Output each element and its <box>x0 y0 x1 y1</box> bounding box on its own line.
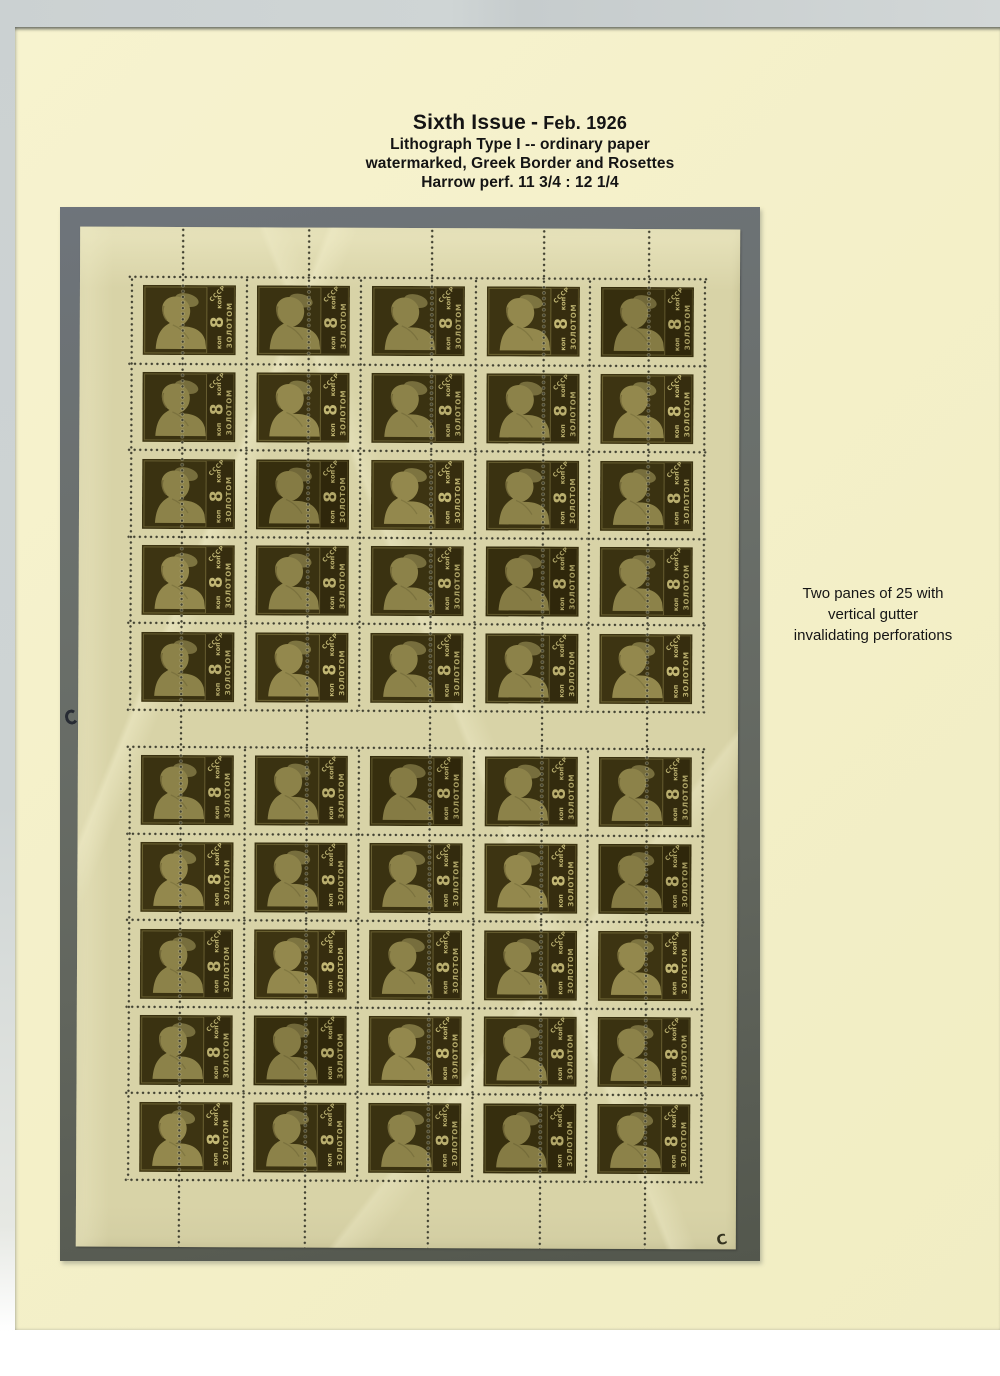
stamp <box>257 286 350 356</box>
stamp-image <box>256 545 349 615</box>
perforation-line-vertical <box>700 279 708 712</box>
stamp <box>484 843 577 913</box>
stamp <box>599 634 692 704</box>
stamp-image <box>254 1015 347 1085</box>
stamp <box>600 547 693 617</box>
perforation-line-vertical <box>354 748 362 1181</box>
stamp-image <box>598 844 691 914</box>
stamp <box>257 372 350 442</box>
stamp-image <box>483 1103 576 1173</box>
stamp <box>139 1102 232 1172</box>
stamp-image <box>368 1103 461 1173</box>
stamp <box>372 286 465 356</box>
perforation-line-vertical <box>127 277 135 710</box>
stamp <box>483 1016 576 1086</box>
stamp-image <box>600 547 693 617</box>
stamp-image <box>257 286 350 356</box>
stamp-image <box>486 287 579 357</box>
stamp-image <box>600 460 693 530</box>
issue-title: Sixth Issue <box>413 111 526 134</box>
stamp <box>142 372 235 442</box>
stamp <box>253 1102 346 1172</box>
perforation-line-vertical <box>471 278 479 711</box>
annotation-line-3: invalidating perforations <box>737 625 1000 646</box>
perforation-line-horizontal <box>125 744 708 753</box>
stamp-image <box>140 842 233 912</box>
stamp-image <box>369 843 462 913</box>
perforation-line-vertical <box>586 279 594 712</box>
perforation-line-horizontal <box>124 1004 707 1013</box>
stamp-image <box>486 460 579 530</box>
subtitle-line-2: watermarked, Greek Border and Rosettes <box>255 154 785 173</box>
stamp-image <box>140 755 233 825</box>
stamp-image <box>369 929 462 999</box>
perforation-line-horizontal <box>126 447 709 456</box>
perforation-line-vertical <box>356 278 364 711</box>
stamp-image <box>600 374 693 444</box>
stamp <box>255 756 348 826</box>
stamp <box>597 1104 690 1174</box>
stamp-image <box>142 458 235 528</box>
stamp <box>601 287 694 357</box>
stamp-image <box>139 1102 232 1172</box>
perforation-line-horizontal <box>125 620 708 629</box>
stamp <box>140 755 233 825</box>
stamp-image <box>599 634 692 704</box>
sheet-edge-punch-mark <box>64 708 80 725</box>
perforation-line-vertical <box>125 747 133 1180</box>
perforation-line-vertical <box>698 749 706 1182</box>
stamp-image <box>142 285 235 355</box>
stamp-image <box>370 633 463 703</box>
stamp <box>483 930 576 1000</box>
subtitle-line-1: Lithograph Type I -- ordinary paper <box>255 135 785 154</box>
stamp <box>485 546 578 616</box>
stamp-image <box>599 757 692 827</box>
stamp <box>600 374 693 444</box>
stamp <box>370 756 463 826</box>
stamp <box>369 843 462 913</box>
stamp <box>140 842 233 912</box>
stamp-image <box>597 1104 690 1174</box>
stamp-image <box>601 287 694 357</box>
stamp-image <box>483 930 576 1000</box>
stamp <box>256 632 349 702</box>
stamp-image <box>598 1017 691 1087</box>
stamp-image <box>257 372 350 442</box>
stamp <box>369 929 462 999</box>
perforation-line-horizontal <box>125 707 708 716</box>
stamp-image <box>141 632 234 702</box>
stamp-image <box>485 546 578 616</box>
stamp <box>256 545 349 615</box>
stamp <box>139 1015 232 1085</box>
stamp <box>484 757 577 827</box>
stamp <box>486 373 579 443</box>
stamp <box>141 632 234 702</box>
stamp-image <box>253 1102 346 1172</box>
stamp-image <box>368 1016 461 1086</box>
stamp-image <box>141 545 234 615</box>
stamp <box>371 546 464 616</box>
stamp-image <box>371 546 464 616</box>
stamp <box>254 929 347 999</box>
control-mark: C <box>715 1231 729 1249</box>
stamp-image <box>370 756 463 826</box>
stamp-image <box>484 757 577 827</box>
perforation-line-vertical <box>240 747 248 1180</box>
stamp <box>483 1103 576 1173</box>
stamp <box>141 545 234 615</box>
stamp-image <box>256 459 349 529</box>
scanner-background-left <box>0 0 15 1332</box>
stamp <box>371 459 464 529</box>
annotation-line-1: Two panes of 25 with <box>737 583 1000 604</box>
stamp-image <box>486 373 579 443</box>
page-title: Sixth Issue-Feb. 1926 <box>255 111 785 135</box>
perforation-line-horizontal <box>126 534 709 543</box>
stamp <box>368 1016 461 1086</box>
stamp-image <box>256 632 349 702</box>
stamp <box>142 285 235 355</box>
mount-mat: C <box>60 207 760 1261</box>
stamp <box>254 1015 347 1085</box>
album-page: Sixth Issue-Feb. 1926 Lithograph Type I … <box>15 27 1000 1330</box>
stamp-image <box>372 286 465 356</box>
stamp <box>256 459 349 529</box>
stamp-image <box>255 842 348 912</box>
stamp-image <box>371 459 464 529</box>
perforation-line-horizontal <box>127 360 710 369</box>
stamp-image <box>254 929 347 999</box>
stamp <box>371 373 464 443</box>
stamp <box>485 633 578 703</box>
stamp <box>598 1017 691 1087</box>
perforation-line-horizontal <box>127 274 710 283</box>
perforation-line-horizontal <box>123 1090 706 1099</box>
page-title-block: Sixth Issue-Feb. 1926 Lithograph Type I … <box>255 111 785 192</box>
stamp-image <box>140 928 233 998</box>
stamp-image <box>485 633 578 703</box>
annotation-line-2: vertical gutter <box>737 604 1000 625</box>
side-annotation: Two panes of 25 with vertical gutter inv… <box>737 583 1000 646</box>
stamp <box>142 458 235 528</box>
stamp <box>599 757 692 827</box>
perforation-line-vertical <box>242 277 250 710</box>
stamp <box>140 928 233 998</box>
stamp-image <box>484 843 577 913</box>
stamp <box>600 460 693 530</box>
subtitle-line-3: Harrow perf. 11 3/4 : 12 1/4 <box>255 173 785 192</box>
stamp-sheet: C <box>76 227 740 1250</box>
stamp-image <box>255 756 348 826</box>
stamp <box>598 844 691 914</box>
stamp-image <box>483 1016 576 1086</box>
issue-date: Feb. 1926 <box>543 113 627 133</box>
title-separator: - <box>526 111 543 134</box>
stamp-image <box>371 373 464 443</box>
perforation-line-vertical <box>583 749 591 1182</box>
stamp <box>255 842 348 912</box>
stamp <box>598 930 691 1000</box>
scanner-background-top <box>0 0 1000 28</box>
stamp <box>368 1103 461 1173</box>
stamp-image <box>598 930 691 1000</box>
stamp <box>486 460 579 530</box>
perforation-line-horizontal <box>125 830 708 839</box>
stamp-image <box>142 372 235 442</box>
perforation-line-horizontal <box>124 917 707 926</box>
perforation-line-horizontal <box>123 1177 706 1186</box>
stamp <box>486 287 579 357</box>
stamp-image <box>139 1015 232 1085</box>
perforation-line-vertical <box>469 748 477 1181</box>
stamp <box>370 633 463 703</box>
